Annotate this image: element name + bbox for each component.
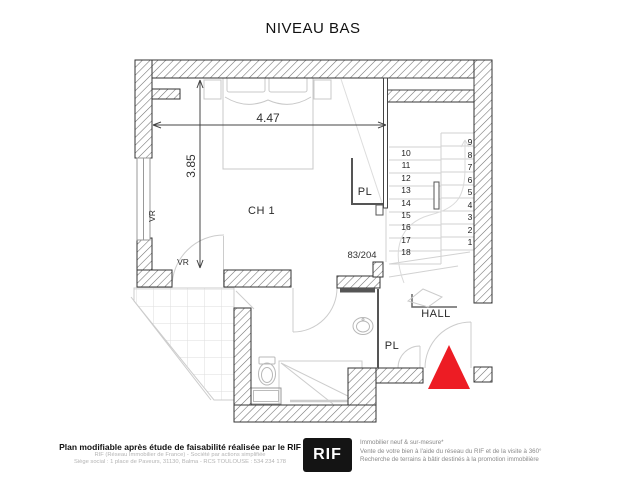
shutter-label-mid: VR xyxy=(170,257,196,267)
stair-step-number: 7 xyxy=(461,162,479,172)
room-label-bedroom: CH 1 xyxy=(248,205,275,217)
stair-step-number: 13 xyxy=(397,185,415,195)
wall-left-upper xyxy=(135,60,152,158)
floor-plan-drawing xyxy=(0,0,640,480)
wall-bath-right-block xyxy=(348,368,376,405)
room-label-hall: HALL xyxy=(413,308,459,320)
wall-top xyxy=(135,60,492,78)
sliding-door-track xyxy=(340,288,375,293)
stair-step-number: 1 xyxy=(461,237,479,247)
washbasin xyxy=(353,318,373,335)
stair-step-number: 4 xyxy=(461,200,479,210)
bathroom-door-arc xyxy=(293,288,337,332)
room-label-closet-upper: PL xyxy=(352,186,378,198)
wall-mid-riser xyxy=(373,262,383,277)
stair-step-number: 6 xyxy=(461,175,479,185)
wall-mid-right xyxy=(337,276,380,288)
stair-step-number: 17 xyxy=(397,235,415,245)
stair-step-number: 11 xyxy=(397,160,415,170)
rif-logo: RIF xyxy=(303,438,352,472)
footer-service-line-2: Vente de votre bien à l'aide du réseau d… xyxy=(360,448,590,457)
stair-step-number: 8 xyxy=(461,150,479,160)
stair-numbers-lower-flight: 987654321 xyxy=(461,0,479,480)
stair-step-number: 3 xyxy=(461,212,479,222)
stair-step-number: 5 xyxy=(461,187,479,197)
footer-service-line-1: Immobilier neuf & sur-mesure* xyxy=(360,439,590,448)
window-left xyxy=(137,158,150,240)
shutter-label-left: VR xyxy=(147,205,159,227)
nightstand-right xyxy=(314,80,331,99)
footer-services: Immobilier neuf & sur-mesure* Vente de v… xyxy=(360,439,590,465)
door-size-label: 83/204 xyxy=(338,250,386,261)
stair-partition xyxy=(384,78,388,208)
wc-door-leaf xyxy=(236,291,254,309)
terrace-tiles xyxy=(131,288,234,400)
partition-post xyxy=(376,205,383,215)
stair-step-number: 14 xyxy=(397,198,415,208)
stair-step-number: 12 xyxy=(397,173,415,183)
footer: Plan modifiable après étude de faisabili… xyxy=(0,436,640,480)
footer-service-line-3: Recherche de terrains à bâtir destinés à… xyxy=(360,456,590,465)
stair-step-number: 18 xyxy=(397,247,415,257)
footer-disclaimer: Plan modifiable après étude de faisabili… xyxy=(40,442,320,465)
stair-step-number: 2 xyxy=(461,225,479,235)
stair-step-number: 15 xyxy=(397,210,415,220)
wall-bottom xyxy=(234,405,376,422)
footer-address-line: Siège social : 1 place de Paveurs, 31130… xyxy=(40,459,320,466)
shower-tray xyxy=(251,388,281,404)
hall-shelf xyxy=(408,289,457,307)
stair-numbers-up-flight: 101112131415161718 xyxy=(397,0,415,480)
page-title: NIVEAU BAS xyxy=(0,20,626,37)
dimension-width-label: 4.47 xyxy=(238,111,298,125)
stair-handrail xyxy=(434,182,439,209)
dimension-height-label: 3.85 xyxy=(184,150,198,182)
toilet xyxy=(259,357,276,385)
floor-plan-page: NIVEAU BAS 4.47 3.85 CH 1 HALL PL PL VR … xyxy=(0,0,640,480)
wall-mid-left xyxy=(224,270,291,287)
wall-pier-foot xyxy=(137,270,172,287)
stair-step-number: 10 xyxy=(397,148,415,158)
stair-step-number: 16 xyxy=(397,222,415,232)
footer-bold-line: Plan modifiable après étude de faisabili… xyxy=(40,442,320,452)
ceiling-slope-line xyxy=(341,79,382,203)
wall-left-stub xyxy=(152,89,180,99)
stair-step-number: 9 xyxy=(461,137,479,147)
nightstand-left xyxy=(204,80,221,99)
